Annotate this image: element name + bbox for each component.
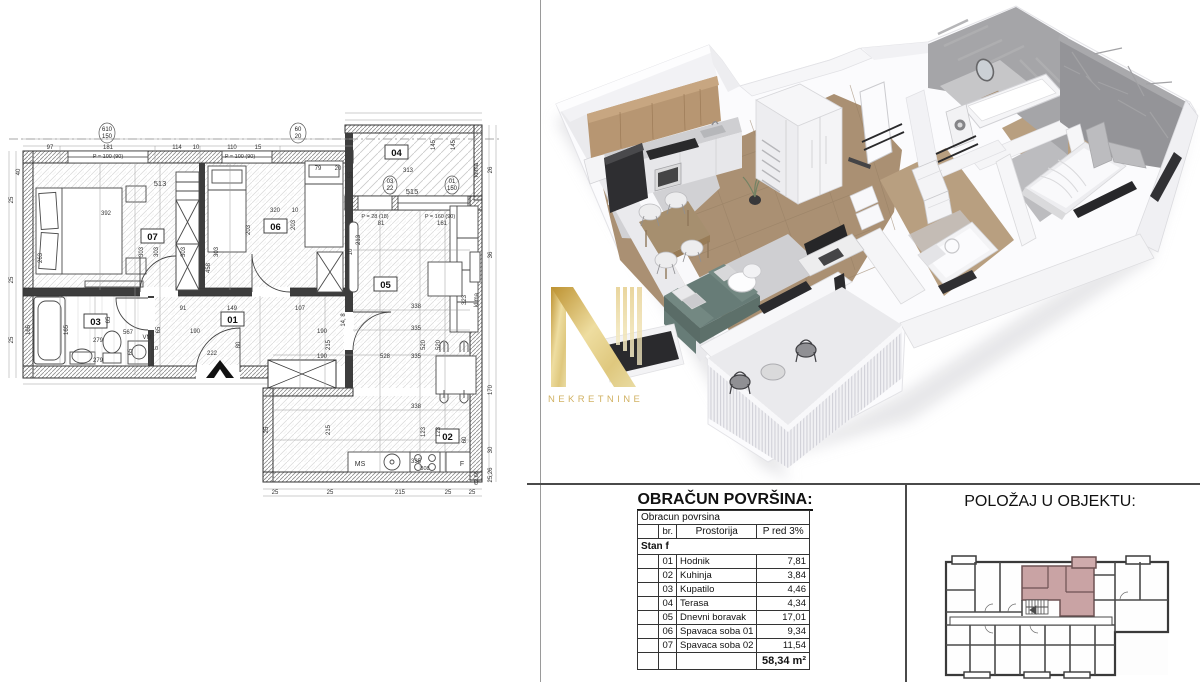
svg-text:MS: MS xyxy=(355,461,366,468)
svg-text:25: 25 xyxy=(272,490,279,496)
svg-text:22: 22 xyxy=(387,186,394,192)
svg-text:215: 215 xyxy=(326,424,332,435)
svg-text:320: 320 xyxy=(270,208,281,214)
svg-text:60: 60 xyxy=(462,436,468,443)
svg-text:03: 03 xyxy=(387,179,394,185)
svg-text:335: 335 xyxy=(411,354,422,360)
svg-text:79: 79 xyxy=(315,166,322,172)
svg-text:279: 279 xyxy=(93,358,104,364)
svg-text:25: 25 xyxy=(9,276,15,283)
svg-text:161: 161 xyxy=(437,221,448,227)
svg-text:279: 279 xyxy=(93,338,104,344)
svg-text:190: 190 xyxy=(190,329,201,335)
svg-text:567: 567 xyxy=(123,330,134,336)
svg-text:25: 25 xyxy=(264,426,270,433)
svg-text:65: 65 xyxy=(106,316,112,323)
svg-text:01: 01 xyxy=(227,315,238,326)
svg-text:528: 528 xyxy=(380,354,391,360)
svg-text:P = 160 (90): P = 160 (90) xyxy=(425,214,455,220)
svg-text:308: 308 xyxy=(420,466,429,472)
svg-text:145: 145 xyxy=(451,139,457,150)
svg-text:klima: klima xyxy=(474,292,480,307)
svg-text:123: 123 xyxy=(436,426,442,437)
svg-text:04: 04 xyxy=(391,148,402,159)
svg-text:263: 263 xyxy=(38,252,44,263)
svg-text:181: 181 xyxy=(103,145,114,151)
svg-text:klima: klima xyxy=(474,162,480,177)
svg-text:20: 20 xyxy=(295,134,302,140)
svg-text:150: 150 xyxy=(447,186,458,192)
svg-text:14, 8: 14, 8 xyxy=(341,313,347,327)
svg-text:P = 100 (90): P = 100 (90) xyxy=(225,154,255,160)
svg-text:40: 40 xyxy=(16,168,22,175)
svg-text:10: 10 xyxy=(292,208,299,214)
svg-text:149: 149 xyxy=(227,306,238,312)
svg-text:91: 91 xyxy=(180,306,187,312)
svg-text:520: 520 xyxy=(436,339,442,350)
svg-text:30: 30 xyxy=(488,446,494,453)
svg-text:25: 25 xyxy=(445,490,452,496)
svg-text:110: 110 xyxy=(227,145,237,151)
svg-text:145: 145 xyxy=(431,139,437,150)
svg-text:215: 215 xyxy=(395,490,406,496)
svg-text:303: 303 xyxy=(154,246,160,257)
svg-text:06: 06 xyxy=(270,222,281,233)
svg-text:215: 215 xyxy=(326,339,332,350)
svg-text:520: 520 xyxy=(421,339,427,350)
svg-text:303: 303 xyxy=(214,246,220,257)
svg-text:335: 335 xyxy=(411,326,422,332)
svg-text:303: 303 xyxy=(181,246,187,257)
svg-text:25,26: 25,26 xyxy=(488,467,494,483)
svg-text:222: 222 xyxy=(207,351,218,357)
svg-text:203: 203 xyxy=(291,219,297,230)
svg-text:165: 165 xyxy=(64,324,70,335)
svg-text:15: 15 xyxy=(255,145,262,151)
svg-text:165: 165 xyxy=(26,324,32,335)
svg-text:610: 610 xyxy=(102,127,113,133)
svg-text:203: 203 xyxy=(246,224,252,235)
svg-text:190: 190 xyxy=(317,354,328,360)
svg-text:303: 303 xyxy=(139,246,145,257)
svg-text:10: 10 xyxy=(348,248,354,255)
svg-text:F: F xyxy=(460,461,464,468)
svg-text:NEKRETNINE: NEKRETNINE xyxy=(548,394,643,405)
svg-text:97: 97 xyxy=(47,145,54,151)
svg-text:62,66: 62,66 xyxy=(474,471,480,485)
svg-text:107: 107 xyxy=(295,306,306,312)
svg-text:114: 114 xyxy=(172,145,182,151)
svg-text:458: 458 xyxy=(206,262,212,273)
svg-text:25: 25 xyxy=(469,490,476,496)
svg-text:10: 10 xyxy=(193,145,200,151)
svg-text:313: 313 xyxy=(403,168,414,174)
svg-text:513: 513 xyxy=(154,179,167,188)
svg-text:80: 80 xyxy=(236,341,242,348)
svg-text:26: 26 xyxy=(488,166,494,173)
svg-text:60: 60 xyxy=(295,127,302,133)
svg-text:P = 28 (18): P = 28 (18) xyxy=(361,214,388,220)
svg-text:323: 323 xyxy=(462,294,468,305)
svg-text:25: 25 xyxy=(9,196,15,203)
svg-text:170: 170 xyxy=(488,384,494,395)
svg-text:03: 03 xyxy=(90,317,101,328)
svg-text:65: 65 xyxy=(156,326,162,333)
svg-text:07: 07 xyxy=(147,232,158,243)
svg-text:123: 123 xyxy=(421,426,427,437)
svg-text:25: 25 xyxy=(327,490,334,496)
svg-text:36: 36 xyxy=(488,251,494,258)
svg-text:02: 02 xyxy=(442,432,453,443)
svg-text:338: 338 xyxy=(411,404,422,410)
svg-text:10: 10 xyxy=(152,346,158,352)
svg-text:335: 335 xyxy=(411,459,422,465)
svg-text:55: 55 xyxy=(348,171,354,178)
svg-text:338: 338 xyxy=(411,304,422,310)
svg-text:25: 25 xyxy=(9,336,15,343)
svg-text:05: 05 xyxy=(380,280,391,291)
svg-text:213: 213 xyxy=(356,234,362,245)
svg-text:VM: VM xyxy=(143,335,152,341)
svg-text:01: 01 xyxy=(449,179,456,185)
svg-text:P = 100 (90): P = 100 (90) xyxy=(93,154,123,160)
svg-text:515: 515 xyxy=(406,187,419,196)
svg-text:20: 20 xyxy=(335,166,342,172)
svg-text:392: 392 xyxy=(101,211,112,217)
svg-text:190: 190 xyxy=(317,329,328,335)
svg-text:81: 81 xyxy=(378,221,385,227)
svg-text:150: 150 xyxy=(102,134,113,140)
svg-text:65: 65 xyxy=(128,348,134,355)
